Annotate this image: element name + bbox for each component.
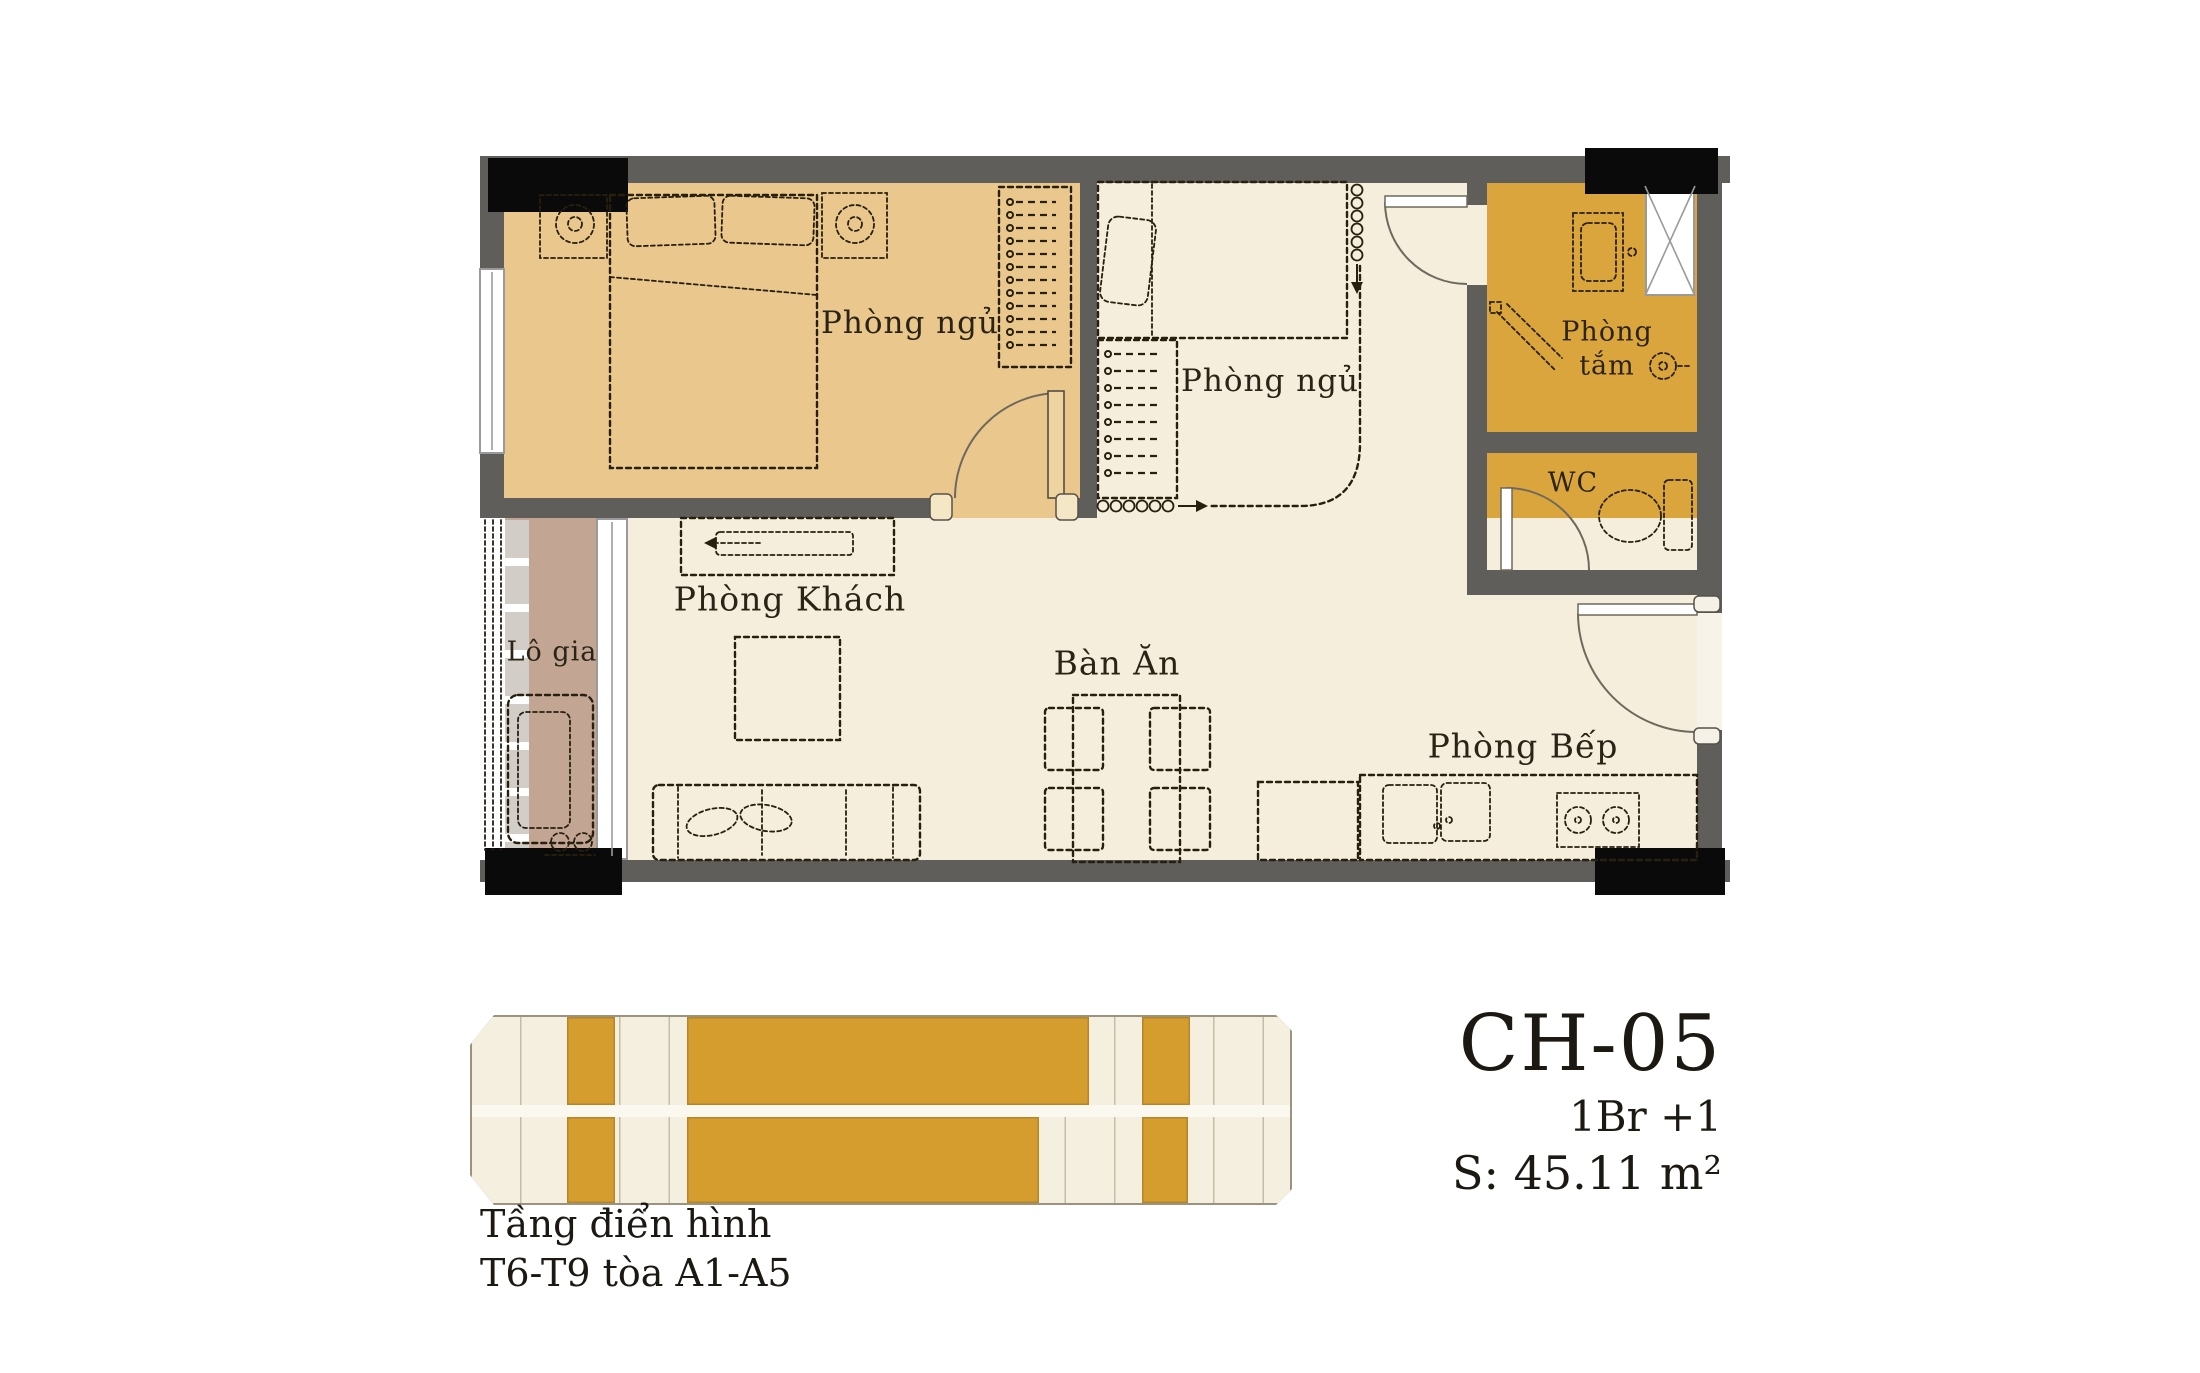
loggia-railing-band xyxy=(505,520,529,850)
bedroom2-area xyxy=(1097,183,1467,518)
wall-bedroom1-bottom xyxy=(480,498,935,518)
column-bottom-left xyxy=(485,848,622,895)
bathroom-label-line2: tắm xyxy=(1579,350,1635,381)
bedroom1-window xyxy=(479,268,505,454)
unit-area: S: 45.11 m² xyxy=(1452,1146,1722,1201)
wall-right-upper xyxy=(1697,156,1722,613)
caption-line2: T6-T9 tòa A1-A5 xyxy=(480,1249,792,1298)
loggia-label: Lô gia xyxy=(507,637,598,668)
caption-line1: Tầng điển hình xyxy=(480,1200,792,1249)
bath-door-gap xyxy=(1467,205,1487,285)
wall-bath-west xyxy=(1467,285,1487,595)
typical-floor-strip xyxy=(470,1015,1292,1205)
column-top-left xyxy=(488,158,628,212)
bedroom1-door-gap xyxy=(935,498,1070,518)
living-label: Phòng Khách xyxy=(674,580,907,619)
unit-title-block: CH-05 1Br +1 S: 45.11 m² xyxy=(1452,1004,1722,1201)
loggia-window xyxy=(596,518,628,860)
highlighted-unit xyxy=(1142,1117,1188,1203)
wall-bedroom-divider xyxy=(1080,183,1097,498)
kitchen-label: Phòng Bếp xyxy=(1428,727,1619,766)
technical-shaft xyxy=(1645,186,1695,296)
wall-bottom xyxy=(480,860,1730,882)
strip-corridor xyxy=(472,1105,1290,1117)
highlighted-unit xyxy=(687,1017,1089,1105)
loggia-railing-icon xyxy=(485,520,501,850)
highlighted-unit xyxy=(1142,1017,1190,1105)
unit-type: 1Br +1 xyxy=(1452,1092,1722,1142)
wall-bath-west-stub xyxy=(1467,156,1487,205)
apartment-plan: Phòng ngủ Phòng ngủ Phòng tắm WC Lô gia … xyxy=(0,0,2200,960)
highlighted-unit xyxy=(687,1117,1039,1203)
wall-bath-wc-divider xyxy=(1487,432,1697,453)
bathroom-label-line1: Phòng xyxy=(1561,316,1652,347)
entry-door-gap xyxy=(1697,613,1722,730)
floorplan-canvas: Phòng ngủ Phòng ngủ Phòng tắm WC Lô gia … xyxy=(0,0,2200,1373)
wc-label: WC xyxy=(1548,468,1598,499)
highlighted-unit xyxy=(567,1117,615,1203)
column-top-right xyxy=(1585,148,1718,194)
unit-code: CH-05 xyxy=(1452,1004,1722,1086)
column-bottom-right xyxy=(1595,848,1725,895)
bedroom2-label: Phòng ngủ xyxy=(1181,363,1359,399)
wall-wc-bottom xyxy=(1467,570,1722,595)
bedroom1-label: Phòng ngủ xyxy=(821,305,999,341)
wall-bedroom1-bottom-right xyxy=(1070,498,1097,518)
bathroom-label: Phòng tắm xyxy=(1561,315,1652,383)
dining-label: Bàn Ăn xyxy=(1054,644,1181,683)
wall-top xyxy=(480,156,1730,183)
floor-caption: Tầng điển hình T6-T9 tòa A1-A5 xyxy=(480,1200,792,1299)
highlighted-unit xyxy=(567,1017,615,1105)
